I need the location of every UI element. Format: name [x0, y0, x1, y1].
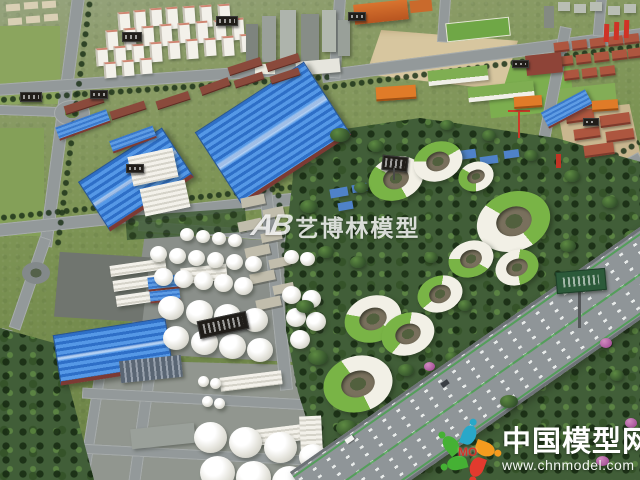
- building: [44, 14, 58, 22]
- tree: [308, 350, 328, 365]
- apartment-block: [185, 39, 198, 60]
- office-tower: [322, 10, 336, 52]
- watermark-logo: AB: [248, 209, 293, 243]
- storage-tank: [214, 274, 233, 292]
- billboard-sign: [90, 90, 108, 99]
- building: [590, 2, 602, 11]
- storage-tank: [284, 250, 299, 264]
- highway-sign-pole: [578, 288, 581, 328]
- storage-tank: [226, 254, 243, 270]
- storage-tank: [194, 422, 227, 453]
- building: [8, 18, 22, 26]
- storage-tank: [174, 270, 193, 288]
- pink-tree: [424, 362, 435, 371]
- apartment-block: [203, 38, 216, 57]
- storage-tank: [228, 234, 242, 247]
- apartment-block: [121, 60, 134, 77]
- billboard-sign: [348, 12, 366, 21]
- ring-billboard: [381, 155, 408, 173]
- office-tower: [301, 14, 319, 62]
- tree: [318, 246, 334, 258]
- red-roof-house: [611, 49, 627, 61]
- billboard-sign: [216, 16, 238, 26]
- tree: [354, 182, 368, 193]
- red-roof-house: [575, 53, 591, 65]
- office-tower: [544, 6, 554, 28]
- tree: [424, 252, 438, 263]
- building: [42, 1, 56, 9]
- red-roof-house: [581, 67, 597, 79]
- storage-tank: [169, 248, 186, 264]
- storage-tank: [264, 432, 297, 463]
- tree: [500, 395, 518, 408]
- pink-tree: [600, 338, 612, 348]
- storage-tank: [212, 232, 226, 245]
- storage-tank: [234, 277, 253, 295]
- tree: [368, 140, 384, 152]
- storage-tank: [196, 230, 210, 243]
- tree: [350, 256, 366, 268]
- tree: [610, 370, 624, 381]
- storage-tank: [158, 296, 184, 320]
- storage-tank: [210, 378, 221, 389]
- tree: [560, 240, 576, 252]
- orange-sign: [592, 99, 619, 112]
- building: [6, 4, 20, 12]
- storage-tank: [290, 330, 310, 349]
- building: [574, 4, 586, 13]
- red-banner: [604, 24, 610, 42]
- building: [26, 16, 40, 24]
- brand-logo: MO: [442, 421, 498, 479]
- apartment-block: [167, 41, 180, 60]
- brand-text: 中国模型网 www.chnmodel.com: [502, 427, 640, 472]
- construction-crane: [508, 110, 530, 112]
- tree: [296, 300, 314, 313]
- building: [525, 52, 563, 76]
- apartment-block: [103, 62, 116, 79]
- red-roof-house: [593, 51, 609, 63]
- red-banner: [614, 22, 620, 40]
- storage-tank: [245, 256, 262, 272]
- billboard-pole: [393, 168, 395, 180]
- billboard-sign: [126, 164, 144, 173]
- tree: [458, 300, 472, 311]
- storage-tank: [198, 376, 209, 387]
- office-tower: [262, 16, 276, 62]
- tree: [440, 120, 454, 130]
- storage-tank: [202, 396, 213, 407]
- orange-sign: [376, 85, 417, 102]
- tree: [564, 170, 580, 182]
- apartment-block: [139, 58, 152, 75]
- billboard-sign: [122, 32, 142, 42]
- storage-tank: [300, 252, 315, 266]
- building: [24, 2, 38, 10]
- office-tower: [338, 20, 350, 56]
- center-watermark: AB 艺博林模型: [252, 206, 472, 246]
- apartment-block: [221, 36, 234, 57]
- storage-tank: [207, 252, 224, 268]
- building: [558, 2, 570, 11]
- tree: [482, 130, 496, 141]
- storage-tank: [150, 246, 167, 262]
- storage-tank: [194, 272, 213, 290]
- storage-tank: [154, 268, 173, 286]
- storage-tank: [188, 250, 205, 266]
- tree: [398, 364, 414, 376]
- tree: [330, 128, 350, 142]
- storage-tank: [247, 338, 273, 362]
- red-roof-house: [627, 47, 640, 59]
- red-roof-house: [553, 41, 569, 53]
- storage-tank: [306, 312, 326, 331]
- roundabout: [22, 262, 50, 284]
- highway-sign: [555, 268, 607, 294]
- billboard-sign: [583, 118, 599, 126]
- watermark-text: 艺博林模型: [295, 209, 420, 243]
- tree: [524, 150, 538, 161]
- red-roof-house: [571, 39, 587, 51]
- storage-tank: [229, 427, 262, 458]
- brand-watermark: MO 中国模型网 www.chnmodel.com: [442, 420, 640, 480]
- sculpture: [556, 154, 561, 168]
- construction-crane: [518, 110, 520, 138]
- tree: [602, 196, 618, 208]
- site-url: www.chnmodel.com: [502, 458, 640, 473]
- orange-sign: [514, 95, 543, 109]
- red-roof-house: [563, 69, 579, 81]
- brand-badge: MO: [458, 445, 477, 459]
- storage-tank: [163, 326, 189, 350]
- storage-tank: [219, 334, 246, 359]
- red-roof-house: [599, 65, 615, 77]
- storage-tank: [180, 228, 194, 241]
- billboard-sign: [512, 60, 529, 68]
- building: [624, 4, 636, 13]
- road: [0, 105, 62, 117]
- building: [409, 0, 432, 13]
- billboard-sign: [20, 92, 42, 102]
- scale-model-photo: AB 艺博林模型 MO 中国模型网 www.chnmodel.com: [0, 0, 640, 480]
- storage-tank: [214, 398, 225, 409]
- red-banner: [624, 20, 630, 38]
- building: [608, 6, 620, 15]
- site-name: 中国模型网: [502, 427, 640, 457]
